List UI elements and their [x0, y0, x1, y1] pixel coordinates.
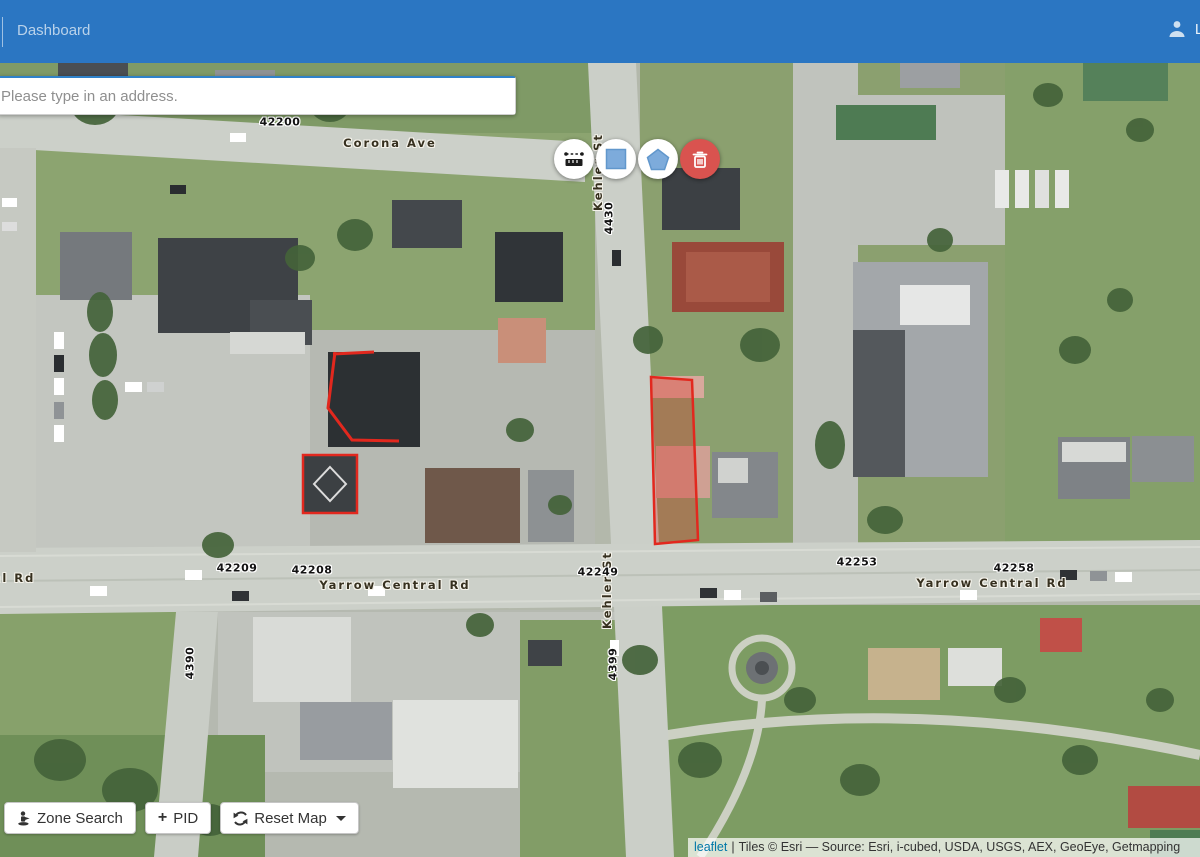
top-navbar: Dashboard Liv	[0, 0, 1200, 63]
reset-map-button[interactable]: Reset Map	[220, 802, 359, 834]
highlighted-parcel[interactable]	[651, 377, 698, 544]
attribution-text: Tiles © Esri — Source: Esri, i-cubed, US…	[739, 840, 1181, 854]
address-search-input[interactable]	[0, 78, 515, 114]
measure-tool-button[interactable]	[554, 139, 594, 179]
zone-street-view-icon	[17, 811, 31, 826]
navbar-divider	[2, 17, 3, 47]
chevron-down-icon	[336, 816, 346, 821]
nav-dashboard-link[interactable]: Dashboard	[17, 22, 90, 39]
pentagon-shape-icon	[646, 148, 670, 171]
leaflet-link[interactable]: leaflet	[694, 840, 727, 854]
satellite-imagery	[0, 0, 1200, 857]
user-menu[interactable]: Liv	[1166, 18, 1200, 40]
zone-search-label: Zone Search	[37, 810, 123, 827]
draw-polygon-button[interactable]	[638, 139, 678, 179]
delete-shapes-button[interactable]	[680, 139, 720, 179]
map-canvas[interactable]: Corona Ave Kehler St Yarrow Central Rd Y…	[0, 63, 1200, 857]
zone-search-button[interactable]: Zone Search	[4, 802, 136, 834]
user-label: Liv	[1195, 21, 1200, 38]
app-window: Corona Ave Kehler St Yarrow Central Rd Y…	[0, 0, 1200, 857]
pid-button[interactable]: + PID	[145, 802, 211, 834]
map-action-bar: Zone Search + PID Reset Map	[4, 802, 359, 834]
rectangle-shape-icon	[605, 148, 627, 170]
reset-map-label: Reset Map	[254, 810, 327, 827]
draw-rectangle-button[interactable]	[596, 139, 636, 179]
user-icon	[1166, 18, 1188, 40]
trash-icon	[692, 150, 708, 169]
attribution-separator: |	[731, 840, 734, 854]
address-search-box	[0, 76, 516, 115]
map-attribution: leaflet|Tiles © Esri — Source: Esri, i-c…	[688, 838, 1200, 857]
refresh-icon	[233, 811, 248, 826]
ruler-measure-icon	[564, 150, 584, 168]
plus-icon: +	[158, 810, 167, 826]
pid-label: PID	[173, 810, 198, 827]
